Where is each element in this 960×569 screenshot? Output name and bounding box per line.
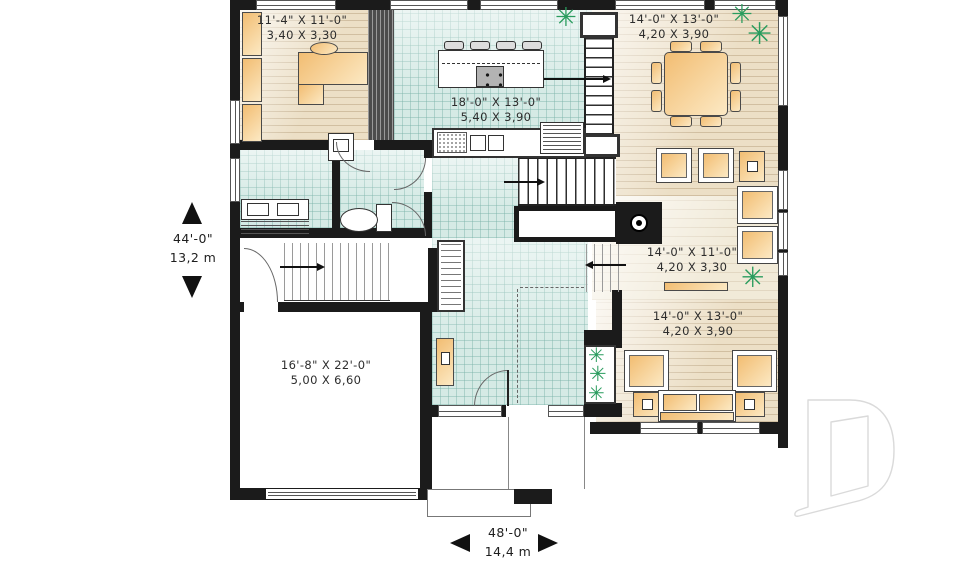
dining-chair bbox=[730, 90, 741, 112]
room-label-kitchen: 18'-0" X 13'-0" 5,40 X 3,90 bbox=[451, 95, 541, 125]
staircase-hall bbox=[284, 243, 390, 301]
porch-edge bbox=[508, 417, 509, 489]
armchair bbox=[737, 186, 778, 224]
window bbox=[480, 0, 558, 10]
room-label-dining: 14'-0" X 13'-0" 4,20 X 3,90 bbox=[629, 12, 719, 42]
room-dim-imperial: 11'-4" X 11'-0" bbox=[257, 13, 347, 28]
sofa-front bbox=[660, 412, 734, 421]
dimension-arrow-down-icon bbox=[182, 276, 202, 298]
sofa-table bbox=[664, 282, 728, 291]
dining-chair bbox=[700, 116, 722, 127]
bookshelf bbox=[242, 104, 262, 142]
window bbox=[778, 16, 788, 106]
stool bbox=[444, 41, 464, 50]
room-label-garage: 16'-8" X 22'-0" 5,00 X 6,60 bbox=[281, 358, 371, 388]
arrow-head-icon bbox=[585, 261, 593, 269]
side-table-detail bbox=[747, 161, 758, 172]
fireplace-wall bbox=[514, 206, 620, 242]
front-door-opening bbox=[506, 405, 548, 417]
window bbox=[778, 252, 788, 276]
window bbox=[390, 0, 468, 10]
ceiling-break-line bbox=[517, 289, 518, 403]
sink-basin bbox=[488, 135, 504, 151]
dining-chair bbox=[700, 41, 722, 52]
drummond-d-logo bbox=[788, 392, 910, 524]
room-dim-metric: 3,40 X 3,30 bbox=[257, 28, 347, 43]
window bbox=[548, 405, 584, 417]
armchair bbox=[624, 350, 669, 392]
window bbox=[256, 0, 336, 10]
room-dim-imperial: 14'-0" X 13'-0" bbox=[653, 309, 743, 324]
arrow-head-icon bbox=[537, 178, 545, 186]
room-dim-metric: 4,20 X 3,90 bbox=[629, 27, 719, 42]
ceiling-break-line bbox=[520, 287, 584, 288]
cooktop-icon bbox=[476, 66, 504, 87]
pantry-shelves bbox=[543, 125, 581, 151]
louver-closet bbox=[368, 10, 394, 140]
window bbox=[230, 100, 240, 144]
stool bbox=[522, 41, 542, 50]
room-dim-metric: 5,40 X 3,90 bbox=[451, 110, 541, 125]
laundry-counter bbox=[241, 221, 309, 234]
sofa-cushion bbox=[663, 394, 697, 411]
room-label-living: 14'-0" X 11'-0" 4,20 X 3,30 bbox=[647, 245, 737, 275]
arrow-head-icon bbox=[603, 75, 611, 83]
overall-width-metric: 14,4 m bbox=[468, 544, 548, 560]
side-table-detail bbox=[642, 399, 653, 410]
wall-garage-right bbox=[420, 312, 432, 500]
direction-arrow-icon bbox=[280, 266, 318, 268]
dining-chair bbox=[651, 90, 662, 112]
staircase-up bbox=[584, 38, 614, 134]
window bbox=[230, 158, 240, 202]
garage-door-panel bbox=[268, 492, 416, 496]
plant-icon bbox=[588, 383, 605, 403]
toilet-bowl bbox=[340, 208, 378, 232]
stair-landing-top bbox=[580, 12, 618, 38]
overall-depth-metric: 13,2 m bbox=[150, 250, 236, 266]
room-dim-metric: 4,20 X 3,90 bbox=[653, 324, 743, 339]
dining-chair bbox=[651, 62, 662, 84]
overall-depth-imperial: 44'-0" bbox=[150, 231, 236, 247]
hall-floor bbox=[432, 158, 518, 238]
direction-arrow-icon bbox=[540, 78, 604, 80]
window bbox=[778, 170, 788, 210]
armchair bbox=[732, 350, 777, 392]
island-counter-line bbox=[442, 63, 540, 64]
direction-arrow-icon bbox=[592, 264, 626, 266]
armchair bbox=[656, 148, 692, 183]
dining-table bbox=[664, 52, 728, 116]
sink-basin bbox=[470, 135, 486, 151]
overall-width-imperial: 48'-0" bbox=[468, 525, 548, 541]
side-table-detail bbox=[744, 399, 755, 410]
dimension-arrow-right-icon bbox=[538, 534, 558, 552]
floor-plan-canvas: 11'-4" X 11'-0" 3,40 X 3,30 18'-0" X 13'… bbox=[0, 0, 960, 569]
desk-chair bbox=[310, 42, 338, 55]
wall-planter-bottom bbox=[584, 403, 622, 417]
door-opening bbox=[244, 302, 278, 312]
sofa-cushion bbox=[699, 394, 733, 411]
wall-laundry-divider bbox=[332, 150, 340, 228]
bookshelf bbox=[242, 58, 262, 102]
plant-icon bbox=[555, 5, 577, 31]
window bbox=[438, 405, 502, 417]
desk bbox=[298, 52, 368, 85]
room-label-office: 11'-4" X 11'-0" 3,40 X 3,30 bbox=[257, 13, 347, 43]
bench-detail bbox=[441, 352, 450, 365]
dining-chair bbox=[670, 116, 692, 127]
armchair bbox=[698, 148, 734, 183]
room-dim-imperial: 14'-0" X 11'-0" bbox=[647, 245, 737, 260]
room-dim-imperial: 14'-0" X 13'-0" bbox=[629, 12, 719, 27]
kitchen-sink bbox=[437, 132, 467, 153]
dryer bbox=[277, 203, 299, 216]
dimension-arrow-left-icon bbox=[450, 534, 470, 552]
front-door-leaf bbox=[507, 370, 509, 406]
window bbox=[778, 212, 788, 250]
desk-return bbox=[298, 84, 324, 105]
room-dim-imperial: 16'-8" X 22'-0" bbox=[281, 358, 371, 373]
armchair bbox=[737, 226, 778, 264]
stool bbox=[470, 41, 490, 50]
fireplace-icon-dot bbox=[636, 220, 642, 226]
porch-edge bbox=[584, 417, 585, 489]
dining-chair bbox=[730, 62, 741, 84]
plant-icon bbox=[747, 20, 772, 50]
closet-shelves bbox=[441, 244, 461, 308]
toilet-tank bbox=[376, 204, 392, 232]
window bbox=[640, 422, 698, 434]
stool bbox=[496, 41, 516, 50]
direction-arrow-icon bbox=[504, 181, 538, 183]
stoop bbox=[514, 489, 552, 504]
dimension-arrow-up-icon bbox=[182, 202, 202, 224]
room-dim-metric: 4,20 X 3,30 bbox=[647, 260, 737, 275]
room-label-family: 14'-0" X 13'-0" 4,20 X 3,90 bbox=[653, 309, 743, 339]
room-dim-imperial: 18'-0" X 13'-0" bbox=[451, 95, 541, 110]
room-dim-metric: 5,00 X 6,60 bbox=[281, 373, 371, 388]
plant-icon bbox=[741, 264, 764, 292]
window bbox=[615, 0, 705, 10]
door-swing bbox=[244, 248, 278, 302]
window bbox=[702, 422, 760, 434]
dining-chair bbox=[670, 41, 692, 52]
washer bbox=[247, 203, 269, 216]
arrow-head-icon bbox=[317, 263, 325, 271]
